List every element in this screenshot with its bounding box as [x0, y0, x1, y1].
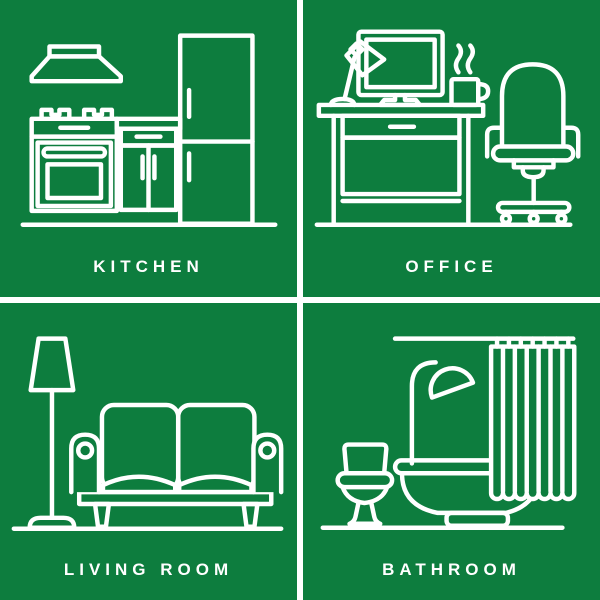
kitchen-illustration-icon [0, 0, 297, 297]
panel-office: OFFICE [303, 0, 600, 297]
panel-kitchen: KITCHEN [0, 0, 297, 297]
desk-icon [319, 105, 483, 225]
bathroom-label: BATHROOM [303, 560, 600, 580]
coffee-mug-icon [452, 46, 489, 105]
office-label: OFFICE [303, 257, 600, 277]
floor-lamp-icon [30, 339, 75, 528]
sofa-icon [71, 405, 281, 527]
refrigerator-icon [180, 36, 252, 224]
cabinet-icon [117, 119, 180, 210]
bathroom-illustration-icon [303, 303, 600, 600]
living-room-label: LIVING ROOM [0, 560, 297, 580]
shower-head-icon [412, 362, 473, 463]
toilet-icon [338, 445, 392, 524]
panel-bathroom: BATHROOM [303, 303, 600, 600]
shower-curtain-icon [491, 339, 574, 499]
range-hood-icon [32, 47, 121, 82]
stove-icon [32, 110, 117, 211]
rooms-poster: KITCHEN [0, 0, 600, 600]
office-chair-icon [487, 64, 578, 222]
office-illustration-icon [303, 0, 600, 297]
living-room-illustration-icon [0, 303, 297, 600]
kitchen-label: KITCHEN [0, 257, 297, 277]
panel-living-room: LIVING ROOM [0, 303, 297, 600]
